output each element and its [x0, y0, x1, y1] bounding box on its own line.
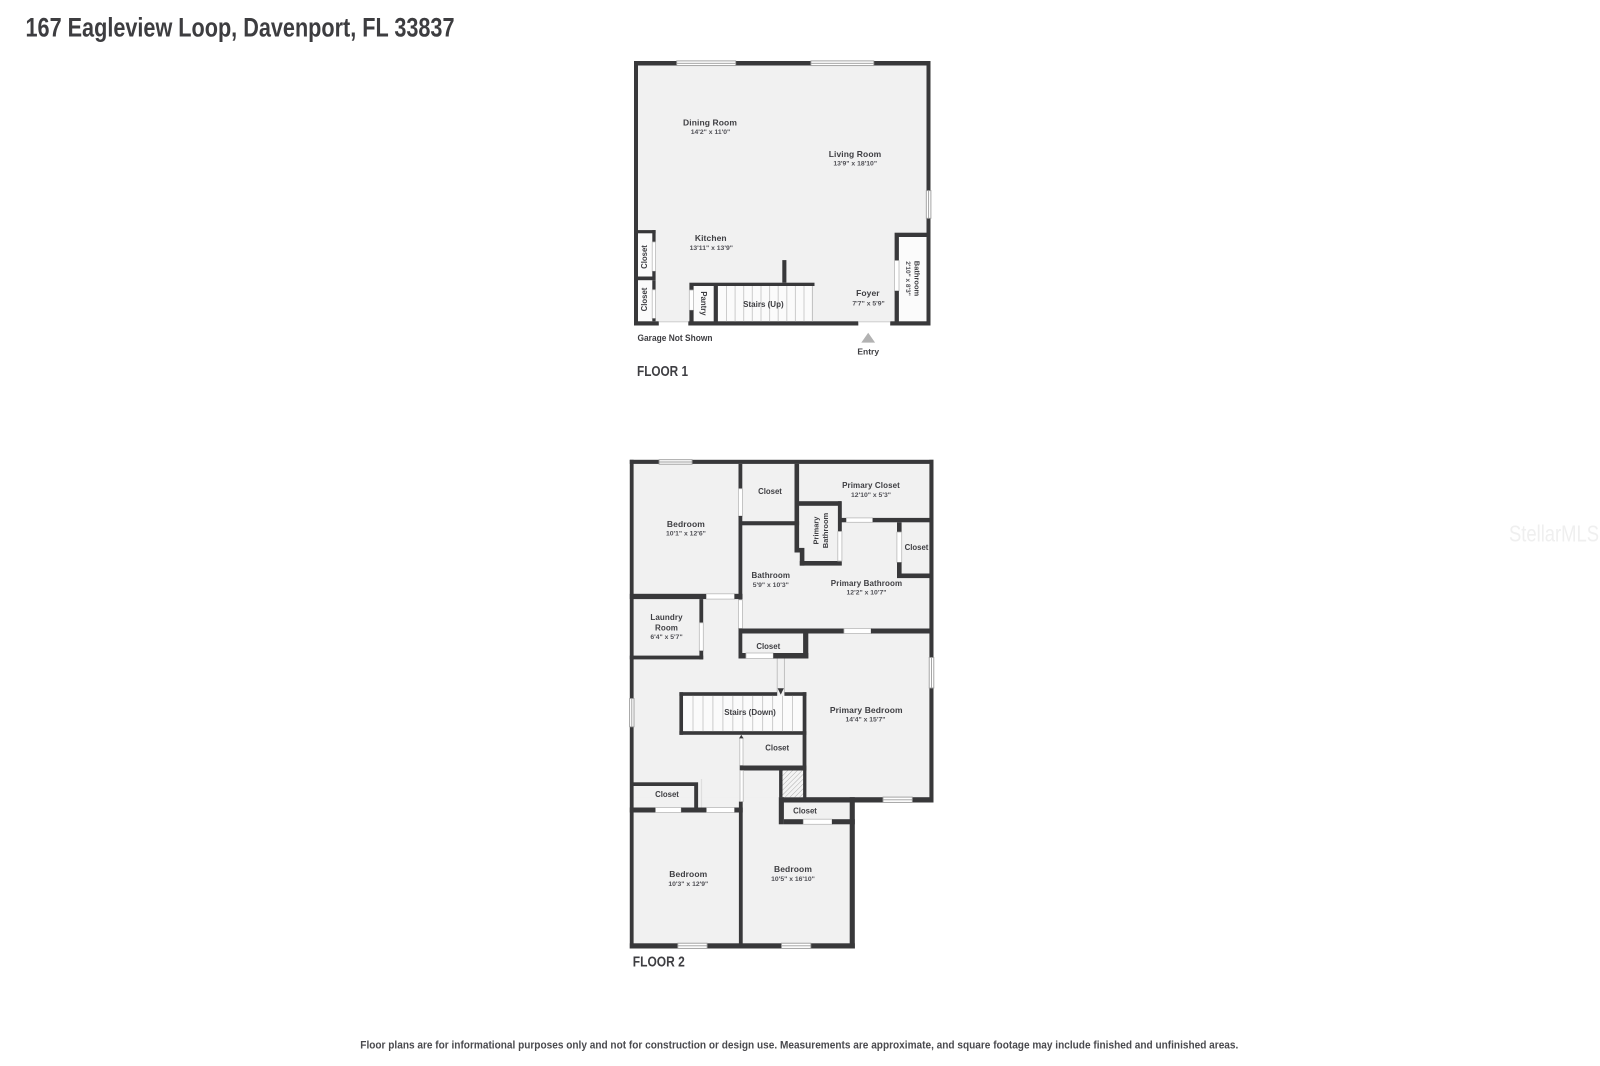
svg-text:Pantry: Pantry: [699, 291, 708, 316]
svg-text:13'9" x 18'10": 13'9" x 18'10": [833, 161, 877, 168]
svg-text:167 Eagleview Loop, Davenport,: 167 Eagleview Loop, Davenport, FL 33837: [26, 13, 455, 43]
svg-text:12'2" x 10'7": 12'2" x 10'7": [847, 589, 887, 596]
svg-text:Foyer: Foyer: [856, 288, 880, 298]
svg-text:Closet: Closet: [793, 806, 817, 815]
svg-text:Primary Bedroom: Primary Bedroom: [830, 705, 903, 715]
svg-text:Closet: Closet: [756, 642, 780, 651]
svg-text:Dining Room: Dining Room: [683, 118, 737, 128]
svg-text:FLOOR 1: FLOOR 1: [637, 364, 688, 380]
svg-text:12'10" x 5'3": 12'10" x 5'3": [851, 492, 891, 499]
svg-text:Kitchen: Kitchen: [695, 233, 727, 243]
svg-text:Closet: Closet: [905, 543, 929, 552]
svg-text:Bedroom: Bedroom: [774, 864, 812, 874]
svg-text:5'9" x 10'3": 5'9" x 10'3": [753, 582, 789, 589]
svg-text:Closet: Closet: [758, 487, 782, 496]
svg-text:Bedroom: Bedroom: [669, 869, 707, 879]
svg-text:Closet: Closet: [765, 744, 789, 753]
svg-text:Stairs (Up): Stairs (Up): [743, 300, 784, 309]
svg-text:Floor plans are for informatio: Floor plans are for informational purpos…: [360, 1039, 1238, 1051]
svg-text:2'10" x 8'3": 2'10" x 8'3": [904, 261, 911, 296]
svg-text:Stairs (Down): Stairs (Down): [724, 708, 776, 717]
svg-text:Room: Room: [655, 623, 678, 632]
svg-text:Living Room: Living Room: [829, 149, 882, 159]
svg-text:Primary Closet: Primary Closet: [842, 481, 900, 490]
svg-text:14'2" x 11'0": 14'2" x 11'0": [691, 129, 731, 136]
svg-text:Closet: Closet: [655, 790, 679, 799]
svg-text:10'1" x 12'6": 10'1" x 12'6": [666, 531, 706, 538]
svg-text:6'4" x 5'7": 6'4" x 5'7": [650, 634, 682, 641]
svg-text:Laundry: Laundry: [650, 613, 683, 622]
svg-text:Primary Bathroom: Primary Bathroom: [831, 579, 902, 588]
svg-text:Garage Not Shown: Garage Not Shown: [638, 333, 713, 344]
svg-text:13'11" x 13'9": 13'11" x 13'9": [690, 245, 733, 252]
svg-text:FLOOR 2: FLOOR 2: [633, 955, 685, 971]
svg-text:Bathroom: Bathroom: [821, 512, 830, 548]
svg-text:7'7" x 5'9": 7'7" x 5'9": [852, 300, 884, 307]
svg-text:Closet: Closet: [640, 245, 649, 269]
svg-text:Entry: Entry: [857, 347, 879, 357]
svg-text:Primary: Primary: [812, 516, 821, 545]
svg-text:Bedroom: Bedroom: [667, 519, 705, 529]
svg-text:Bathroom: Bathroom: [913, 261, 922, 297]
svg-text:10'3" x 12'9": 10'3" x 12'9": [668, 881, 708, 888]
svg-text:10'5" x 16'10": 10'5" x 16'10": [771, 876, 815, 883]
svg-text:StellarMLS: StellarMLS: [1509, 521, 1599, 547]
svg-text:Bathroom: Bathroom: [752, 571, 791, 580]
svg-text:Closet: Closet: [640, 287, 649, 311]
svg-text:14'4" x 15'7": 14'4" x 15'7": [846, 716, 886, 723]
